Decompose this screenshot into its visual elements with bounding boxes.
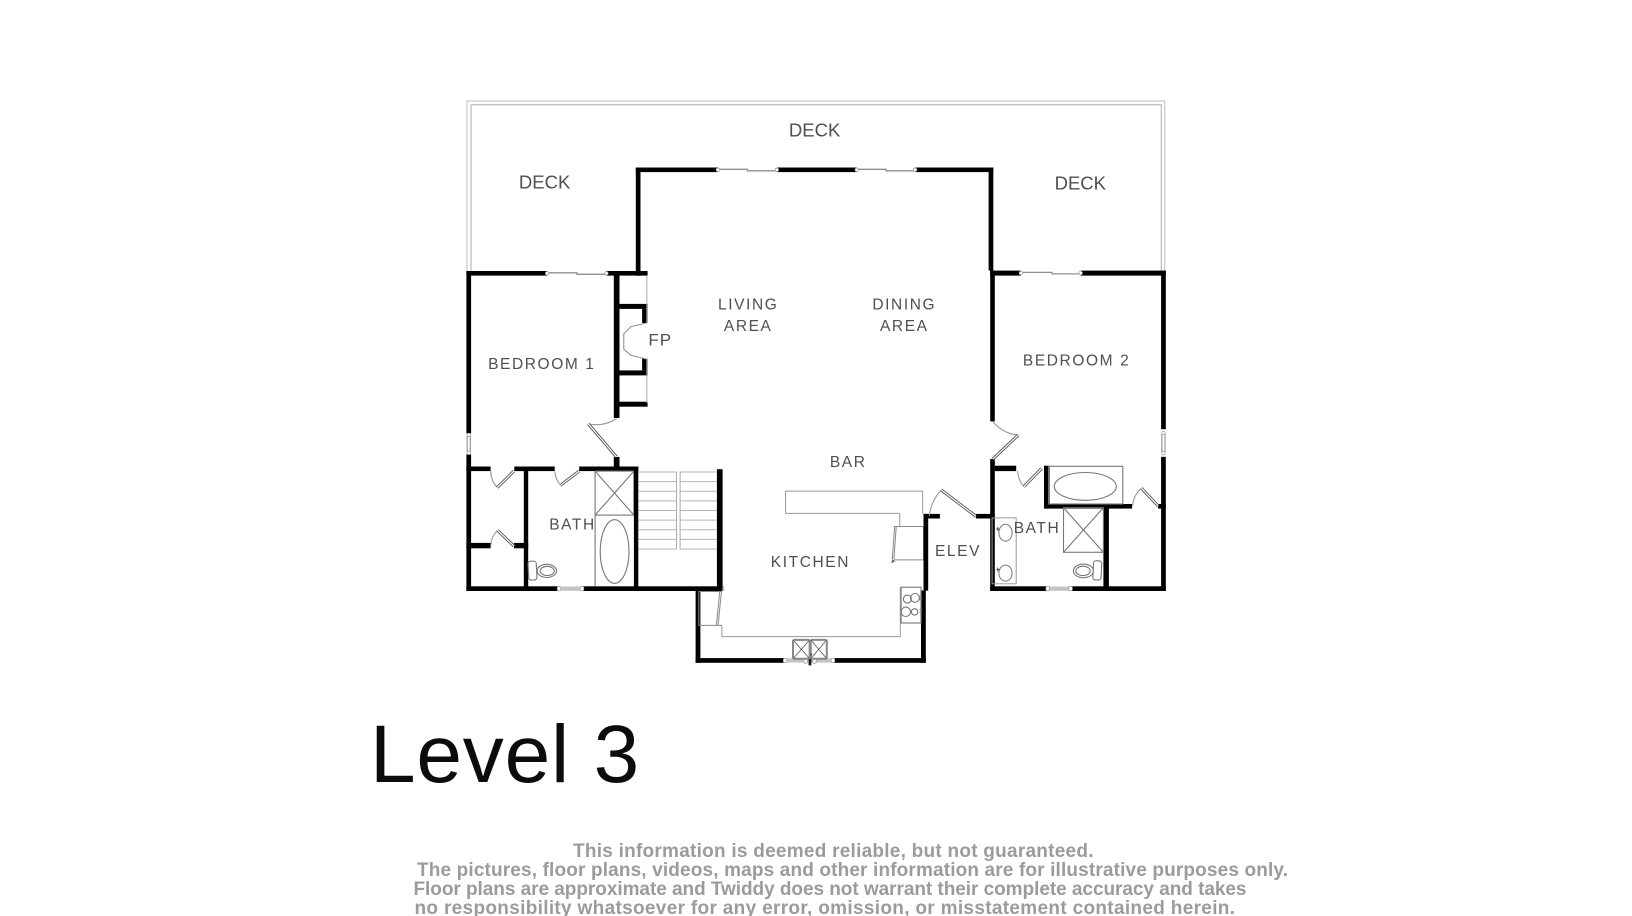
svg-text:AREA: AREA [880, 318, 929, 335]
svg-text:LIVING: LIVING [718, 296, 778, 313]
svg-text:Floor plans are approximate an: Floor plans are approximate and Twiddy d… [414, 879, 1247, 900]
svg-text:DECK: DECK [789, 120, 841, 141]
svg-text:no responsibility whatsoever f: no responsibility whatsoever for any err… [415, 898, 1236, 916]
svg-text:BEDROOM 1: BEDROOM 1 [488, 356, 595, 373]
svg-text:BATH: BATH [1014, 520, 1061, 537]
svg-text:DINING: DINING [872, 296, 936, 313]
svg-text:BATH: BATH [549, 516, 596, 533]
svg-text:BEDROOM 2: BEDROOM 2 [1023, 353, 1130, 370]
svg-text:This information is deemed rel: This information is deemed reliable, but… [573, 841, 1094, 862]
svg-text:Level 3: Level 3 [370, 709, 640, 800]
svg-text:FP: FP [648, 330, 672, 349]
svg-text:KITCHEN: KITCHEN [771, 554, 850, 571]
svg-text:The pictures, floor plans, vid: The pictures, floor plans, videos, maps … [417, 860, 1288, 881]
svg-text:DECK: DECK [1055, 173, 1107, 194]
svg-text:BAR: BAR [830, 454, 867, 471]
svg-text:DECK: DECK [519, 172, 571, 193]
svg-text:ELEV: ELEV [935, 543, 981, 560]
svg-text:AREA: AREA [724, 318, 773, 335]
